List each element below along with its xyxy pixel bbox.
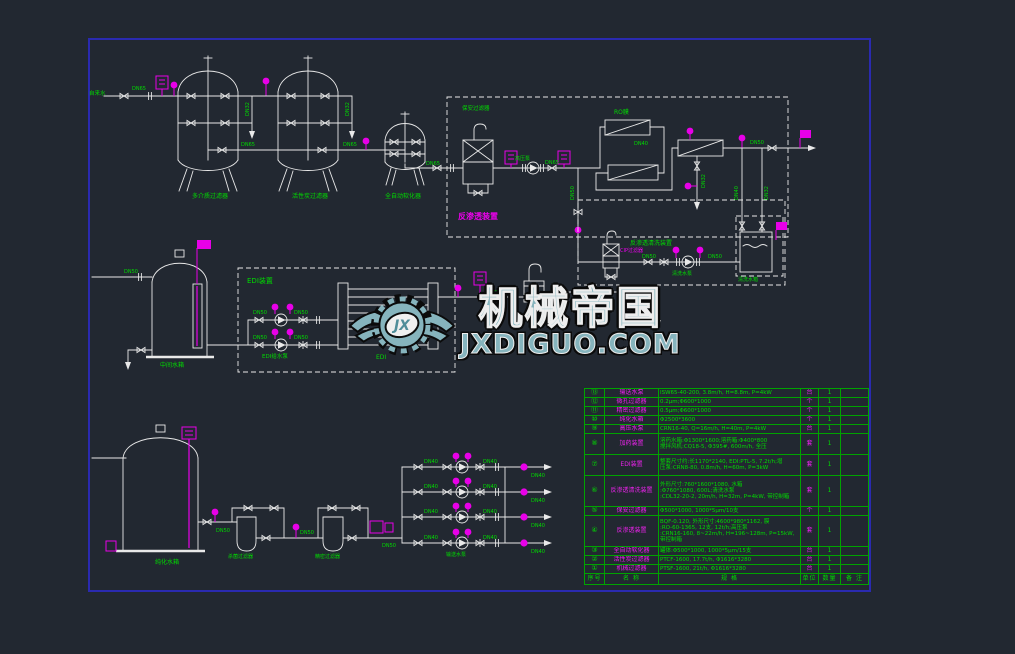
pipe-size-label: DN32 xyxy=(764,186,770,200)
gauge-icon xyxy=(739,135,746,142)
outlet-valve-icon xyxy=(520,539,527,546)
pipe-size-label: DN40 xyxy=(424,459,438,465)
equipment-bom-table: ⑬输送水泵ISW65-40-200, 3.8m/h, H=8.8m, P=4kW… xyxy=(584,388,869,585)
pump-tag-icon xyxy=(385,523,393,532)
table-row: ③全自动软化器罐体:Φ500*1000, 1000*5μm/15支台1 xyxy=(585,547,869,556)
cip-unit-label: 反渗透清洗装置 xyxy=(630,239,672,247)
pump-tag-icon xyxy=(370,521,383,533)
gauge-icon xyxy=(263,78,270,85)
pipe-size-label: DN50 xyxy=(124,269,138,275)
pipe-size-label: DN40 xyxy=(424,509,438,515)
gauge-icon xyxy=(687,128,694,135)
pipe-size-label: DN40 xyxy=(424,484,438,490)
cip-filter xyxy=(603,231,619,280)
flow-arrow-icon xyxy=(808,145,816,151)
purified-water-tank xyxy=(106,425,205,551)
multimedia-filter-vessel: DN32 xyxy=(178,56,255,191)
cip-tank-label: 清洗水箱 xyxy=(738,276,758,283)
vessel-label: 杀菌过滤器 xyxy=(228,553,253,560)
pipe-size-label: DN50 xyxy=(253,335,267,341)
guard-filter-label: 保安过滤器 xyxy=(462,104,490,112)
guard-filter-vessel xyxy=(463,124,493,196)
vessel-label: 多介质过滤器 xyxy=(192,192,228,200)
pretreatment-section: 自来水 DN65 DN32 多介质过滤器 xyxy=(89,56,447,200)
flow-arrow-icon xyxy=(544,514,552,520)
table-row: ⑩纯化水箱Φ2500*3600个1 xyxy=(585,416,869,425)
gauge-icon xyxy=(272,304,279,311)
pipe-size-label: DN32 xyxy=(245,102,251,116)
gauge-icon xyxy=(287,329,294,336)
pipe-size-label: DN40 xyxy=(483,459,497,465)
table-row: ④反渗透装置BQF-0.120, 外形尺寸:4600*980*1162, 膜 :… xyxy=(585,516,869,547)
pipe-size-label: DN40 xyxy=(424,535,438,541)
gauge-icon xyxy=(287,304,294,311)
pipe-size-label: DN32 xyxy=(345,102,351,116)
table-header-row: 序号名 称规 格单位数量备 注 xyxy=(585,574,869,585)
vessel-label: 活性炭过滤器 xyxy=(292,192,328,200)
pipe-size-label: DN65 xyxy=(343,142,357,148)
gauge-icon xyxy=(171,82,178,89)
pipe-size-label: DN50 xyxy=(750,140,764,146)
gauge-icon xyxy=(363,138,370,145)
table-row: ②活性炭过滤器PTCF-1600, 17.7t/h, Φ1616*3280台1 xyxy=(585,556,869,565)
drain-arrow-icon xyxy=(249,131,255,139)
edi-unit-label: EDI装置 xyxy=(247,276,273,285)
instrument-tag-icon xyxy=(558,151,570,164)
drain-arrow-icon xyxy=(694,202,700,210)
pipe-size-label: DN50 xyxy=(294,335,308,341)
softener-vessel xyxy=(385,112,425,185)
cip-unit-section: 反渗透清洗装置 清洗水箱 DN50 DN50 清洗水泵 xyxy=(578,200,787,285)
vessel-label: 精密过滤器 xyxy=(315,553,340,560)
watermark: JX 机械帝国 JXDIGUO.COM xyxy=(348,280,681,364)
pipe-size-label: DN50 xyxy=(216,528,230,534)
pipe-size-label: DN40 xyxy=(531,473,545,479)
tank-label: 纯化水箱 xyxy=(155,558,179,566)
pipe-size-label: DN40 xyxy=(531,523,545,529)
drain-arrow-icon xyxy=(349,131,355,139)
table-row: ⑧加药装置溶药水箱:Φ1300*1600;溶药箱:Φ400*800 搅拌风机:C… xyxy=(585,434,869,455)
cip-pump-label: 清洗水泵 xyxy=(672,270,692,277)
instrument-tag-icon xyxy=(156,76,168,89)
ro-membrane-label: RO膜 xyxy=(614,108,629,116)
intermediate-tank xyxy=(125,240,214,370)
outlet-valve-icon xyxy=(520,463,527,470)
table-row: ⑬输送水泵ISW65-40-200, 3.8m/h, H=8.8m, P=4kW… xyxy=(585,389,869,398)
delivery-pump-label: 输送水泵 xyxy=(446,551,466,558)
flow-arrow-icon xyxy=(544,540,552,546)
outlet-valve-icon xyxy=(520,513,527,520)
gauge-icon xyxy=(212,509,219,516)
gauge-icon xyxy=(685,183,692,190)
pipe-size-label: DN40 xyxy=(531,498,545,504)
logo-monogram: JX xyxy=(391,318,411,334)
gauge-icon xyxy=(697,247,704,254)
watermark-title: 机械帝国 xyxy=(478,287,662,331)
flow-arrow-icon xyxy=(544,489,552,495)
ro-unit-label: 反渗透装置 xyxy=(458,211,498,221)
ro-unit-section: 反渗透装置 保安过滤器 高压泵 DN65 DN50 xyxy=(447,97,816,262)
pipe-size-label: DN40 xyxy=(483,484,497,490)
gauge-icon xyxy=(293,524,300,531)
hp-pump-label: 高压泵 xyxy=(515,155,530,162)
gauge-icon xyxy=(272,329,279,336)
watermark-logo: JX xyxy=(348,280,456,364)
pipe-size-label: DN40 xyxy=(634,141,648,147)
table-row: ⑤保安过滤器Φ500*1000, 1000*5μm/10支个1 xyxy=(585,507,869,516)
pipe-size-label: DN40 xyxy=(531,549,545,555)
tank-label: 中间水箱 xyxy=(160,361,184,369)
pipe-size-label: DN50 xyxy=(708,254,722,260)
connector-flag-icon xyxy=(800,130,811,148)
pipe-size-label: DN40 xyxy=(483,535,497,541)
pipe-size-label: DN40 xyxy=(483,509,497,515)
pipe-size-label: DN50 xyxy=(294,310,308,316)
table-row: ⑦EDI装置整套尺寸约:长1170*2140, EDI:PTL-5, 7.2t/… xyxy=(585,455,869,476)
vessel-label: 全自动软化器 xyxy=(385,192,421,200)
distribution-manifold: DN40 DN40 DN40 DN40 DN40 xyxy=(402,453,552,555)
cip-tank xyxy=(740,232,772,272)
pipe-size-label: DN50 xyxy=(300,530,314,536)
outlet-valve-icon xyxy=(520,488,527,495)
pipe-size-label: DN32 xyxy=(701,174,707,188)
cip-filter-label: CIP过滤器 xyxy=(620,247,643,254)
drain-arrow-icon xyxy=(125,362,131,370)
pipe-size-label: DN50 xyxy=(642,254,656,260)
cad-drawing-canvas: 自来水 DN65 DN32 多介质过滤器 xyxy=(0,0,1015,654)
pipe-size-label: DN65 xyxy=(545,160,559,166)
sterile-filter-vessel xyxy=(232,505,323,551)
pipe-size-label: DN65 xyxy=(241,142,255,148)
table-row: ⑨高压水泵CRN16-40, Q=16m/h, H=40m, P=4kW台1 xyxy=(585,425,869,434)
pipe-size-label: DN50 xyxy=(253,310,267,316)
table-row: ⑥反渗透清洗装置外形尺寸:760*1600*1080, 水箱 :Φ760*108… xyxy=(585,476,869,507)
watermark-url: JXDIGUO.COM xyxy=(460,331,681,358)
pipe-size-label: DN50 xyxy=(570,186,576,200)
gauge-icon xyxy=(673,247,680,254)
pipe-size-label: DN50 xyxy=(382,543,396,549)
table-row: ⑪精密过滤器0.5μm;Φ600*1000个1 xyxy=(585,407,869,416)
edi-pump-label: EDI给水泵 xyxy=(262,352,288,360)
raw-water-label: 自来水 xyxy=(89,89,106,97)
distribution-section: 纯化水箱 DN50 杀菌过滤器 DN50 精密过滤器 xyxy=(92,425,552,566)
pipe-size-label: DN40 xyxy=(734,186,740,200)
flow-arrow-icon xyxy=(544,464,552,470)
carbon-filter-vessel: DN32 xyxy=(278,56,355,191)
table-row: ①机械过滤器PTSF-1600, 21t/h, Φ1616*3280台1 xyxy=(585,565,869,574)
table-row: ⑫微孔过滤器0.2μm;Φ600*1000个1 xyxy=(585,398,869,407)
pipe-size-label: DN65 xyxy=(132,86,146,92)
